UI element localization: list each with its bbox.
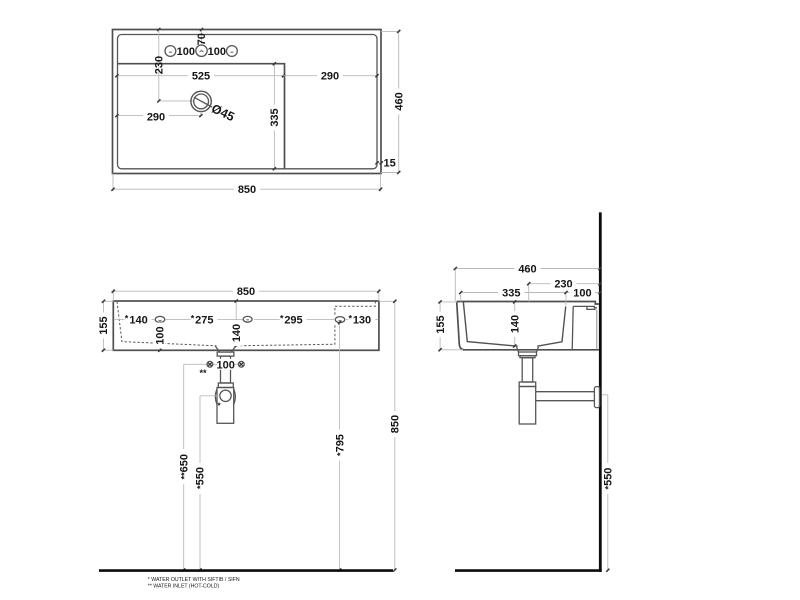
svg-text:*: * bbox=[349, 313, 353, 323]
svg-text:100: 100 bbox=[177, 46, 195, 58]
svg-text:335: 335 bbox=[502, 288, 520, 300]
svg-text:**: ** bbox=[200, 368, 208, 378]
svg-text:*: * bbox=[280, 313, 284, 323]
svg-text:850: 850 bbox=[390, 415, 402, 433]
svg-text:140: 140 bbox=[129, 314, 147, 326]
svg-text:335: 335 bbox=[269, 108, 281, 126]
svg-text:140: 140 bbox=[231, 324, 243, 342]
svg-text:* WATER OUTLET WITH SIFTIB /: * WATER OUTLET WITH SIFTIB / SIFN bbox=[148, 577, 240, 583]
svg-text:*550: *550 bbox=[603, 468, 615, 490]
svg-text:850: 850 bbox=[238, 184, 256, 196]
svg-text:850: 850 bbox=[237, 286, 255, 298]
svg-text:140: 140 bbox=[509, 315, 521, 333]
svg-text:290: 290 bbox=[321, 71, 339, 83]
svg-text:130: 130 bbox=[353, 314, 371, 326]
svg-text:** WATER INLET (HOT-COLD): ** WATER INLET (HOT-COLD) bbox=[148, 584, 220, 590]
svg-text:295: 295 bbox=[284, 314, 302, 326]
svg-text:*550: *550 bbox=[195, 467, 207, 489]
svg-text:230: 230 bbox=[154, 56, 166, 74]
svg-text:**650: **650 bbox=[178, 454, 190, 479]
svg-text:155: 155 bbox=[435, 315, 447, 333]
svg-text:*: * bbox=[218, 402, 222, 411]
svg-text:100: 100 bbox=[208, 46, 226, 58]
svg-text:*795: *795 bbox=[334, 434, 346, 456]
svg-text:290: 290 bbox=[147, 112, 165, 124]
svg-text:70: 70 bbox=[196, 33, 208, 45]
svg-text:100: 100 bbox=[155, 326, 167, 344]
svg-text:15: 15 bbox=[384, 158, 396, 170]
svg-text:100: 100 bbox=[217, 359, 235, 371]
svg-text:100: 100 bbox=[573, 288, 591, 300]
svg-text:460: 460 bbox=[393, 92, 405, 110]
svg-text:155: 155 bbox=[98, 316, 110, 334]
svg-text:*: * bbox=[191, 313, 195, 323]
svg-text:525: 525 bbox=[192, 71, 210, 83]
svg-text:275: 275 bbox=[195, 314, 213, 326]
svg-text:Ø45: Ø45 bbox=[209, 101, 236, 124]
svg-text:*: * bbox=[125, 313, 129, 323]
svg-text:460: 460 bbox=[518, 264, 536, 276]
